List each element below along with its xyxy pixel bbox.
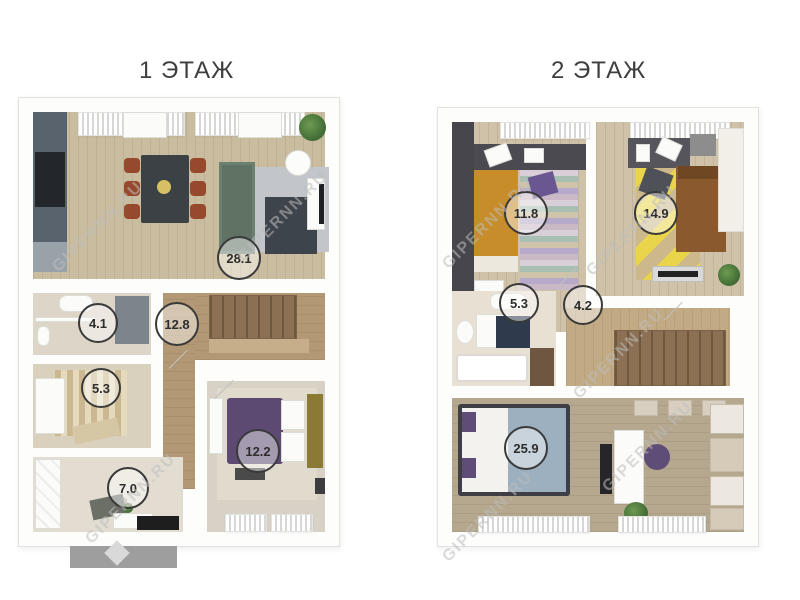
shower (115, 296, 149, 344)
area-label-bathroom1: 4.1 (78, 303, 118, 343)
area-label-hall2: 4.2 (563, 285, 603, 325)
desk (209, 398, 223, 454)
kitchen-cabinet (33, 242, 67, 272)
wardrobe-white (718, 128, 744, 232)
room-bedroom-big (452, 398, 744, 532)
area-label-utility: 5.3 (81, 368, 121, 408)
porch (70, 546, 177, 568)
bed-foot-blanket (474, 256, 518, 272)
window-curtains (225, 514, 267, 532)
window-sill (238, 112, 282, 138)
wardrobe (35, 459, 61, 529)
bed-pillows (281, 400, 305, 430)
window-sill (123, 112, 167, 138)
piano (652, 266, 704, 282)
headboard (307, 394, 323, 468)
area-label-bathroom2: 5.3 (499, 283, 539, 323)
floor1-plan: 28.1 4.1 12.8 5.3 7.0 (18, 97, 340, 547)
washing-machine (35, 378, 65, 434)
room-living-kitchen (33, 112, 325, 279)
dining-chair (190, 181, 206, 196)
floor2-plan: 11.8 14.9 5.3 4.2 (437, 107, 759, 547)
bathtub (456, 354, 528, 382)
monitor (636, 144, 650, 162)
chair-purple (644, 444, 670, 470)
wardrobe-unit (710, 438, 744, 472)
tv (600, 444, 612, 494)
tv (319, 184, 324, 224)
dining-chair (124, 181, 140, 196)
area-label-bedroom-big: 25.9 (504, 426, 548, 470)
stairs (209, 295, 297, 339)
pillow-purple (462, 458, 476, 478)
cabinet-brown (530, 348, 554, 386)
floor2-title: 2 ЭТАЖ (551, 57, 646, 85)
area-label-entry: 7.0 (107, 467, 149, 509)
area-label-bedroom1: 12.2 (236, 429, 280, 473)
storage-basket (690, 134, 716, 156)
dining-chair (124, 204, 140, 219)
doormat (137, 516, 179, 530)
area-label-hall1: 12.8 (155, 302, 199, 346)
wardrobe-charcoal (452, 122, 474, 314)
stair-landing (209, 339, 309, 353)
plant (718, 264, 740, 286)
dining-chair (190, 204, 206, 219)
wardrobe-unit (710, 404, 744, 434)
sink (37, 326, 50, 346)
bed-pillows (281, 432, 305, 462)
area-label-bedroom-left: 11.8 (504, 191, 548, 235)
chair (668, 400, 692, 416)
window-curtains (500, 122, 590, 139)
wardrobe-unit (710, 508, 744, 530)
dining-chair (190, 158, 206, 173)
monitor (524, 148, 544, 163)
chair (634, 400, 658, 416)
area-label-bedroom-right: 14.9 (634, 191, 678, 235)
plant (299, 114, 326, 141)
dining-plate (157, 180, 171, 194)
stairs (614, 330, 726, 386)
wardrobe-unit (710, 476, 744, 506)
area-label-living: 28.1 (217, 236, 261, 280)
sink (456, 320, 474, 344)
window-curtains (618, 516, 706, 533)
pillow-purple (462, 412, 476, 432)
window-curtains (271, 514, 313, 532)
side-table (285, 150, 311, 176)
kitchen-stove (35, 152, 65, 207)
dining-chair (124, 158, 140, 173)
piano-keys (658, 271, 698, 277)
desk-partition (614, 430, 644, 504)
window-curtains (478, 516, 590, 533)
floor1-title: 1 ЭТАЖ (139, 57, 234, 85)
pouf (315, 478, 325, 494)
